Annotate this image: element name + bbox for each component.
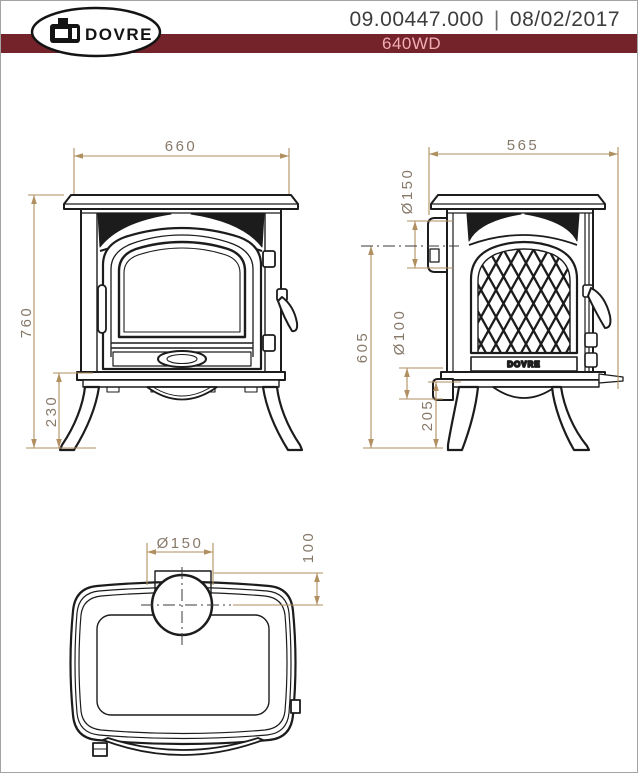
- doc-number-text: 09.00447.000: [349, 8, 483, 31]
- side-view: DOVRE: [406, 195, 637, 450]
- dim-flue-rear-offset: 100: [300, 531, 317, 564]
- dim-flue-center-height: 605: [354, 331, 371, 364]
- front-view: [60, 195, 302, 450]
- datasheet-page: DOVRE: [0, 0, 638, 773]
- dim-leg-height: 230: [43, 395, 60, 428]
- dim-depth: 565: [507, 137, 540, 154]
- dim-top-flue-dia: Ø150: [157, 535, 204, 552]
- technical-drawing: DOVRE: [1, 1, 637, 772]
- document-reference: 09.00447.000|08/02/2017: [349, 8, 620, 32]
- side-plaque-text: DOVRE: [507, 360, 540, 369]
- dim-rear-outlet-height: 205: [419, 399, 436, 432]
- dovre-logo: DOVRE: [28, 6, 164, 65]
- logo-wordmark: DOVRE: [85, 25, 153, 44]
- dim-total-height: 760: [18, 306, 35, 339]
- revision-date: 08/02/2017: [510, 8, 620, 31]
- dim-rear-outlet-dia: Ø100: [391, 309, 408, 356]
- dim-front-width: 660: [165, 138, 198, 155]
- dim-flue-collar-dia: Ø150: [399, 168, 416, 215]
- top-view: [71, 567, 301, 756]
- separator: |: [494, 8, 500, 31]
- model-number: 640WD: [382, 34, 441, 53]
